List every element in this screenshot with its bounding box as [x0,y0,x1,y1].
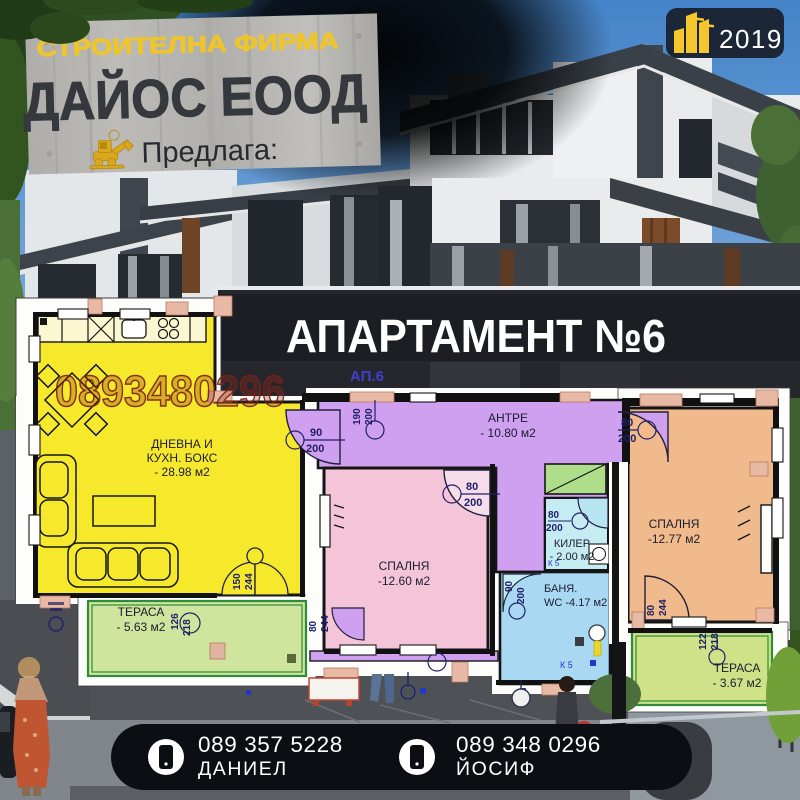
svg-text:90: 90 [504,580,515,592]
svg-text:- 10.80 м2: - 10.80 м2 [480,426,536,440]
svg-text:ДАЙОС ЕООД: ДАЙОС ЕООД [22,63,367,133]
svg-text:80: 80 [548,510,560,521]
svg-text:244: 244 [658,599,669,616]
svg-text:ТЕРАСА: ТЕРАСА [118,605,165,619]
svg-text:200: 200 [618,433,636,445]
svg-text:ДНЕВНА И: ДНЕВНА И [151,437,212,451]
svg-text:СПАЛНЯ: СПАЛНЯ [379,559,430,573]
svg-text:0893480296: 0893480296 [55,367,285,416]
svg-text:200: 200 [364,408,375,425]
svg-text:Предлага:: Предлага: [141,134,278,170]
svg-text:218: 218 [710,633,721,650]
svg-text:КИЛЕР: КИЛЕР [554,538,590,550]
svg-text:ЙОСИФ: ЙОСИФ [456,756,536,780]
svg-text:- 28.98 м2: - 28.98 м2 [154,465,210,479]
svg-text:190: 190 [352,408,363,425]
svg-text:80: 80 [308,620,319,632]
svg-text:218: 218 [182,619,193,636]
svg-text:126: 126 [170,613,181,630]
svg-text:WC -4.17 м2: WC -4.17 м2 [544,597,607,609]
svg-text:- 5.63 м2: - 5.63 м2 [117,620,166,634]
svg-text:80: 80 [646,604,657,616]
svg-text:200: 200 [516,587,527,604]
svg-text:244: 244 [320,615,331,632]
svg-text:КУХН. БОКС: КУХН. БОКС [147,451,218,465]
svg-text:АПАРТАМЕНТ №6: АПАРТАМЕНТ №6 [286,310,666,362]
svg-text:200: 200 [546,523,563,534]
svg-text:СПАЛНЯ: СПАЛНЯ [649,517,700,531]
svg-text:- 3.67 м2: - 3.67 м2 [713,676,762,690]
svg-text:ТЕРАСА: ТЕРАСА [714,661,761,675]
svg-text:АНТРЕ: АНТРЕ [488,411,528,425]
svg-text:90: 90 [310,427,322,439]
svg-text:АП.6: АП.6 [350,368,384,385]
svg-text:200: 200 [306,443,324,455]
svg-text:089 348 0296: 089 348 0296 [456,732,601,757]
svg-text:К 5: К 5 [560,660,573,670]
svg-text:- 2.00 м2: - 2.00 м2 [550,551,595,563]
svg-text:-12.77 м2: -12.77 м2 [648,532,701,546]
svg-text:150: 150 [232,573,243,590]
svg-text:-12.60 м2: -12.60 м2 [378,574,431,588]
svg-text:089 357 5228: 089 357 5228 [198,732,343,757]
svg-text:200: 200 [464,497,482,509]
svg-text:80: 80 [466,481,478,493]
svg-text:244: 244 [244,573,255,590]
svg-text:80: 80 [621,417,633,429]
svg-text:2019: 2019 [719,24,783,54]
svg-text:122: 122 [698,633,709,650]
svg-text:БАНЯ.: БАНЯ. [544,583,577,595]
svg-text:ДАНИЕЛ: ДАНИЕЛ [198,758,288,780]
